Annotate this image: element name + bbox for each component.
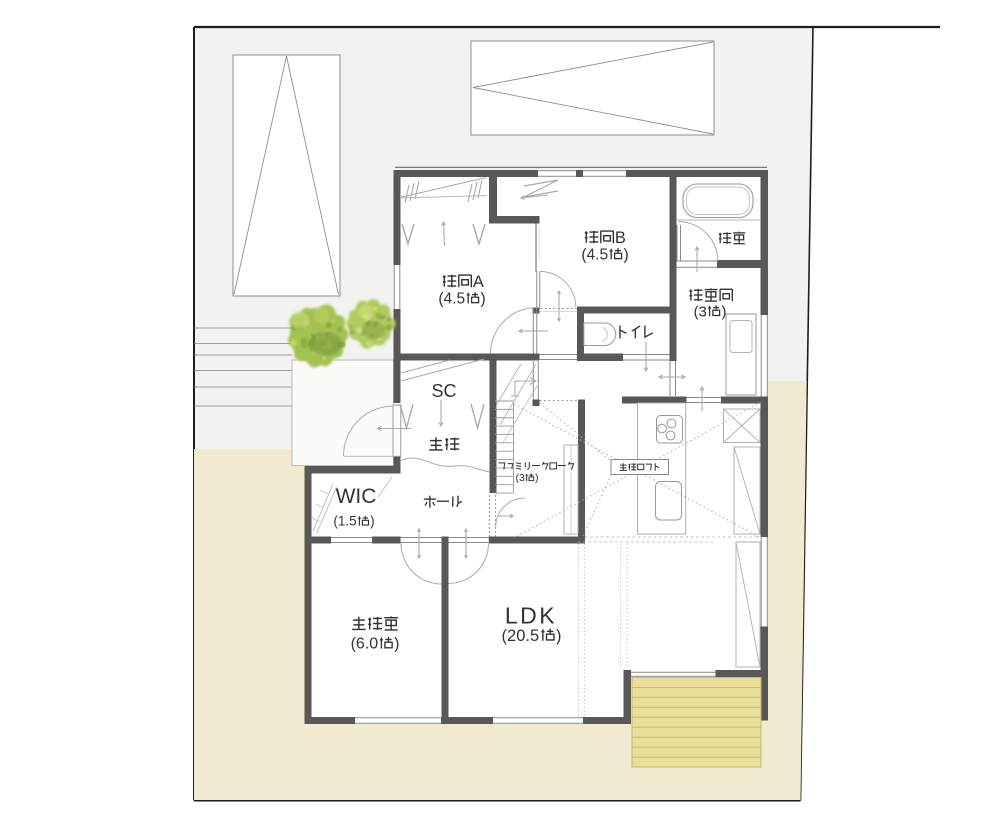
svg-text:): ) <box>556 627 562 645</box>
svg-text:): ) <box>481 290 486 307</box>
svg-text:): ) <box>721 303 726 320</box>
svg-text:(4.5: (4.5 <box>581 246 608 263</box>
svg-text:LDK: LDK <box>505 603 557 629</box>
svg-text:): ) <box>535 472 539 484</box>
svg-text:(3: (3 <box>694 303 707 320</box>
svg-text:(20.5: (20.5 <box>502 627 540 645</box>
svg-text:(3: (3 <box>516 472 525 484</box>
svg-text:A: A <box>473 273 484 291</box>
svg-text:SC: SC <box>431 381 456 401</box>
svg-text:(4.5: (4.5 <box>438 290 465 307</box>
svg-text:): ) <box>370 514 375 529</box>
svg-text:): ) <box>394 636 399 653</box>
svg-text:B: B <box>615 229 626 247</box>
svg-text:WIC: WIC <box>336 485 377 508</box>
svg-text:(6.0: (6.0 <box>351 636 379 653</box>
svg-text:): ) <box>624 246 629 263</box>
svg-text:(1.5: (1.5 <box>333 514 356 529</box>
